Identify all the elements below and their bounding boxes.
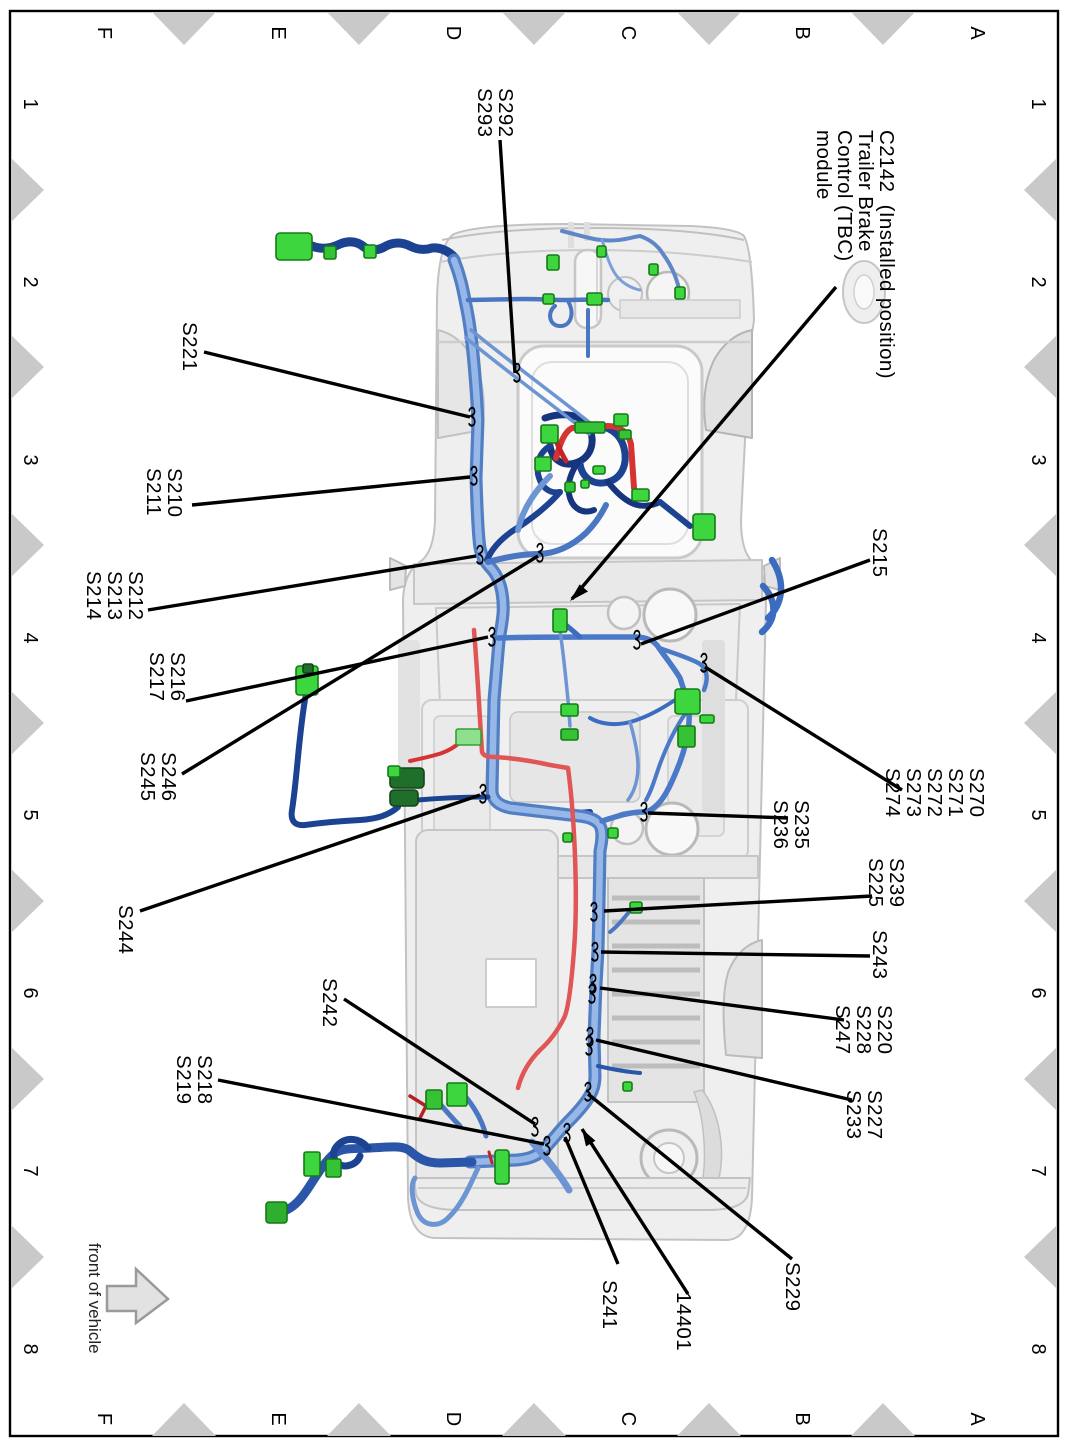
svg-text:S214: S214 (82, 571, 105, 620)
svg-text:S274: S274 (881, 768, 904, 817)
svg-text:F: F (93, 1413, 115, 1425)
svg-text:A: A (966, 1412, 988, 1426)
svg-text:S219: S219 (172, 1055, 195, 1104)
svg-text:E: E (267, 26, 289, 39)
svg-text:S292: S292 (494, 88, 517, 137)
svg-text:S220: S220 (873, 1005, 896, 1054)
svg-text:S246: S246 (157, 752, 180, 801)
svg-text:14401: 14401 (672, 1292, 695, 1351)
svg-text:S217: S217 (145, 652, 168, 701)
svg-text:3: 3 (19, 454, 41, 465)
svg-text:S213: S213 (103, 571, 126, 620)
svg-text:S215: S215 (868, 528, 891, 577)
svg-text:front of vehicle: front of vehicle (85, 1243, 104, 1354)
svg-text:S243: S243 (868, 930, 891, 979)
svg-text:7: 7 (19, 1165, 41, 1176)
svg-text:4: 4 (1027, 632, 1049, 643)
svg-text:S233: S233 (842, 1090, 865, 1139)
svg-text:4: 4 (19, 632, 41, 643)
svg-text:S239: S239 (885, 858, 908, 907)
svg-text:2: 2 (19, 276, 41, 287)
svg-text:S227: S227 (863, 1090, 886, 1139)
svg-text:3: 3 (1027, 454, 1049, 465)
svg-text:1: 1 (19, 98, 41, 109)
svg-text:S270: S270 (965, 768, 988, 817)
svg-text:C2142 (Installed position): C2142 (Installed position) (875, 130, 898, 379)
svg-text:S212: S212 (124, 571, 147, 620)
svg-text:D: D (442, 1412, 464, 1426)
svg-text:8: 8 (19, 1343, 41, 1354)
svg-text:6: 6 (19, 987, 41, 998)
svg-text:B: B (791, 26, 813, 39)
svg-text:Trailer Brake: Trailer Brake (854, 130, 877, 252)
svg-text:S273: S273 (902, 768, 925, 817)
svg-text:S229: S229 (781, 1262, 804, 1311)
svg-text:B: B (791, 1412, 813, 1425)
svg-text:S218: S218 (193, 1055, 216, 1104)
svg-text:6: 6 (1027, 987, 1049, 998)
svg-text:2: 2 (1027, 276, 1049, 287)
svg-text:S210: S210 (163, 468, 186, 517)
svg-text:S245: S245 (136, 752, 159, 801)
svg-text:S247: S247 (831, 1005, 854, 1054)
svg-text:S225: S225 (864, 858, 887, 907)
svg-text:5: 5 (19, 809, 41, 820)
svg-text:S244: S244 (114, 905, 137, 954)
svg-text:S242: S242 (318, 978, 341, 1027)
svg-text:S221: S221 (178, 322, 201, 371)
svg-text:E: E (267, 1412, 289, 1425)
svg-text:S216: S216 (166, 652, 189, 701)
svg-text:C: C (617, 1412, 639, 1426)
svg-text:S228: S228 (852, 1005, 875, 1054)
svg-text:D: D (442, 26, 464, 40)
svg-text:5: 5 (1027, 809, 1049, 820)
svg-text:S272: S272 (923, 768, 946, 817)
svg-text:S241: S241 (598, 1280, 621, 1329)
svg-text:S271: S271 (944, 768, 967, 817)
svg-text:Control (TBC): Control (TBC) (833, 130, 856, 262)
svg-text:1: 1 (1027, 98, 1049, 109)
svg-text:S236: S236 (769, 800, 792, 849)
svg-text:8: 8 (1027, 1343, 1049, 1354)
svg-text:A: A (966, 26, 988, 40)
svg-text:module: module (812, 130, 835, 200)
svg-text:S211: S211 (142, 468, 165, 516)
svg-text:S235: S235 (790, 800, 813, 849)
svg-text:F: F (93, 27, 115, 39)
svg-text:S293: S293 (473, 88, 496, 137)
svg-text:C: C (617, 26, 639, 40)
svg-text:7: 7 (1027, 1165, 1049, 1176)
